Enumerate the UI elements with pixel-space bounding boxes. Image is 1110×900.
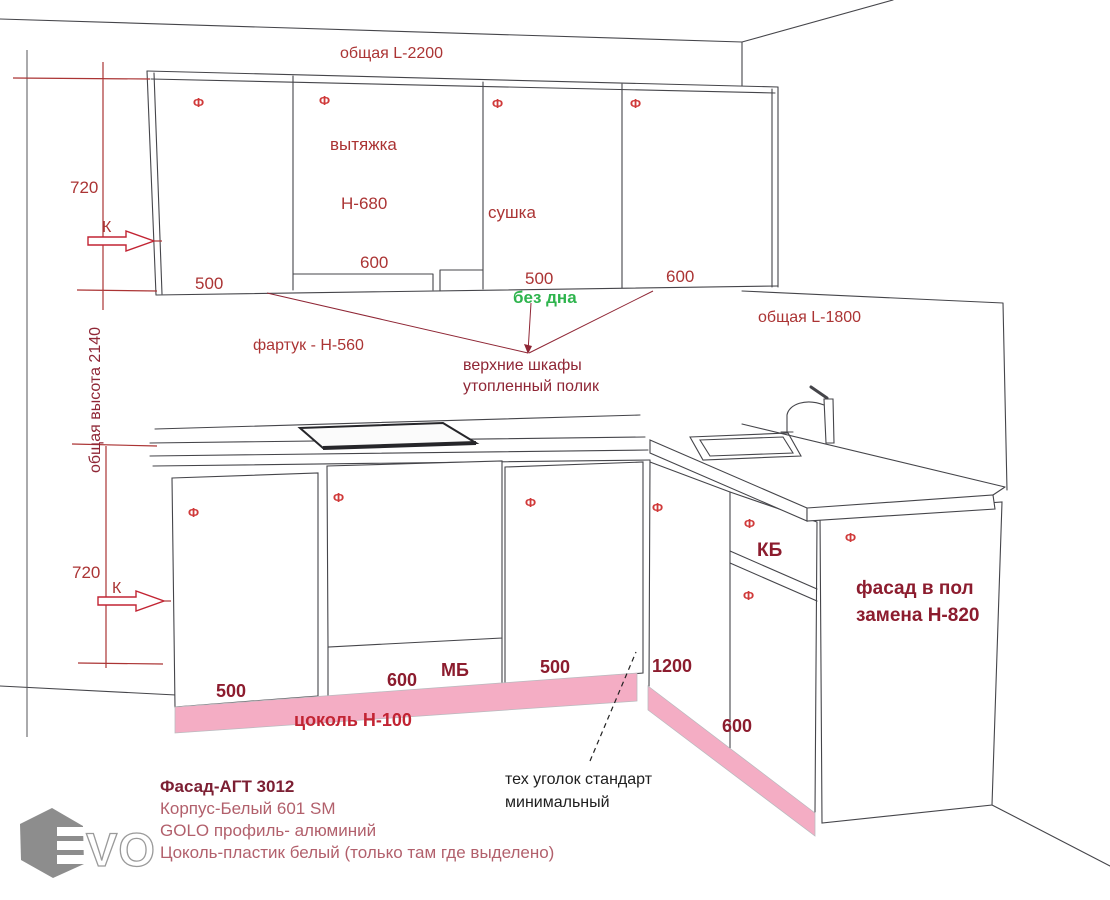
facade-mark: Ф <box>630 96 641 111</box>
legend-plinth-material: Цоколь-пластик белый (только там где выд… <box>160 843 554 862</box>
logo-vo-text: VO <box>86 823 156 876</box>
corner-stile <box>649 460 650 686</box>
faucet-spout <box>781 402 824 432</box>
facade-mark: Ф <box>492 96 503 111</box>
apron-note: фартук - Н-560 <box>253 337 364 354</box>
materials-legend: Фасад-АГТ 3012 Корпус-Белый 601 SM GOLO … <box>160 777 554 862</box>
base-cabinet1-width: 500 <box>216 681 246 701</box>
facade-mark: Ф <box>525 495 536 510</box>
floor-line-left <box>0 686 176 695</box>
facade-mark: Ф <box>319 93 330 108</box>
facade-mark: Ф <box>193 95 204 110</box>
faucet-body <box>824 399 834 443</box>
upper-shelf-note-line2: утопленный полик <box>463 378 600 395</box>
tech-note-line2: минимальный <box>505 794 610 811</box>
facade-note-line2: замена Н-820 <box>856 605 979 626</box>
k-arrow-lower <box>98 591 164 611</box>
logo-e-bar <box>57 827 85 836</box>
floor-line-right <box>992 805 1110 866</box>
evo-logo: VO <box>20 808 156 878</box>
kb-label: КБ <box>757 540 782 561</box>
mb-label: МБ <box>441 660 469 680</box>
facade-mark: Ф <box>333 490 344 505</box>
facade-mark: Ф <box>743 588 754 603</box>
dryer-width: 500 <box>525 269 553 288</box>
k-arrow-upper <box>88 231 154 251</box>
legend-facade-material: Фасад-АГТ 3012 <box>160 777 294 796</box>
logo-e-bar <box>57 855 85 864</box>
ceiling-line-right <box>742 0 893 42</box>
legend-carcass-material: Корпус-Белый 601 SM <box>160 799 335 818</box>
legend-profile-material: GOLO профиль- алюминий <box>160 821 376 840</box>
base-cabinet3-width: 500 <box>540 657 570 677</box>
counter-right-back-edge <box>742 424 1005 495</box>
countertop-right-run <box>650 387 1005 521</box>
overall-height-label: общая высота 2140 <box>87 327 104 473</box>
base-door-2-mb <box>327 461 502 647</box>
mb-width: 600 <box>387 670 417 690</box>
plinth-label: цоколь Н-100 <box>294 710 412 730</box>
upper-door-dividers <box>293 76 622 290</box>
upper-shelf-note-line1: верхние шкафы <box>463 357 582 374</box>
facade-mark: Ф <box>845 530 856 545</box>
ceiling-line-left <box>0 19 742 42</box>
upper-height-label: 720 <box>70 178 98 197</box>
upper-run-bottom-edge <box>156 286 778 295</box>
end-facade-panel <box>820 502 1002 823</box>
right-cabinet-width: 600 <box>722 716 752 736</box>
upper-total-width-label: общая L-2200 <box>340 45 443 62</box>
dryer-label: сушка <box>488 203 536 222</box>
logo-e-bar <box>57 841 85 850</box>
hood-cabinet-recess <box>293 270 483 291</box>
upper-run-left-side <box>147 71 162 295</box>
hood-door-height-label: Н-680 <box>341 194 387 213</box>
facade-mark: Ф <box>744 516 755 531</box>
countertop-left-run <box>150 415 650 466</box>
upper-cabinet-run <box>147 71 778 295</box>
lower-height-dim-lines <box>72 444 163 668</box>
facade-note-line1: фасад в пол <box>856 578 974 599</box>
no-bottom-note: без дна <box>513 288 577 307</box>
sink-outer-rim <box>690 433 801 460</box>
plinth-right-run <box>648 686 815 836</box>
kitchen-drawing-page: Ф Ф Ф Ф Ф Ф Ф Ф Ф Ф Ф общая L-2200 общая… <box>0 0 1110 900</box>
faucet-lever <box>811 387 827 398</box>
upper-run-top-edge <box>147 71 778 93</box>
tech-note-line1: тех уголок стандарт <box>505 771 653 788</box>
facade-mark: Ф <box>188 505 199 520</box>
upper-cabinet4-width: 600 <box>666 267 694 286</box>
hood-width: 600 <box>360 253 388 272</box>
k-mark-lower-label: К <box>112 580 122 597</box>
k-mark-upper-label: К <box>102 219 112 236</box>
lower-height-label: 720 <box>72 563 100 582</box>
counter-right-front-face <box>650 440 807 521</box>
corner-cabinet-width: 1200 <box>652 656 692 676</box>
sink-bowl <box>700 437 793 456</box>
facade-mark: Ф <box>652 500 663 515</box>
upper-cabinet1-width: 500 <box>195 274 223 293</box>
right-total-width-label: общая L-1800 <box>758 309 861 326</box>
hood-label: вытяжка <box>330 135 397 154</box>
kitchen-elevation-diagram: Ф Ф Ф Ф Ф Ф Ф Ф Ф Ф Ф общая L-2200 общая… <box>0 0 1110 900</box>
upper-run-right-side <box>772 87 778 287</box>
